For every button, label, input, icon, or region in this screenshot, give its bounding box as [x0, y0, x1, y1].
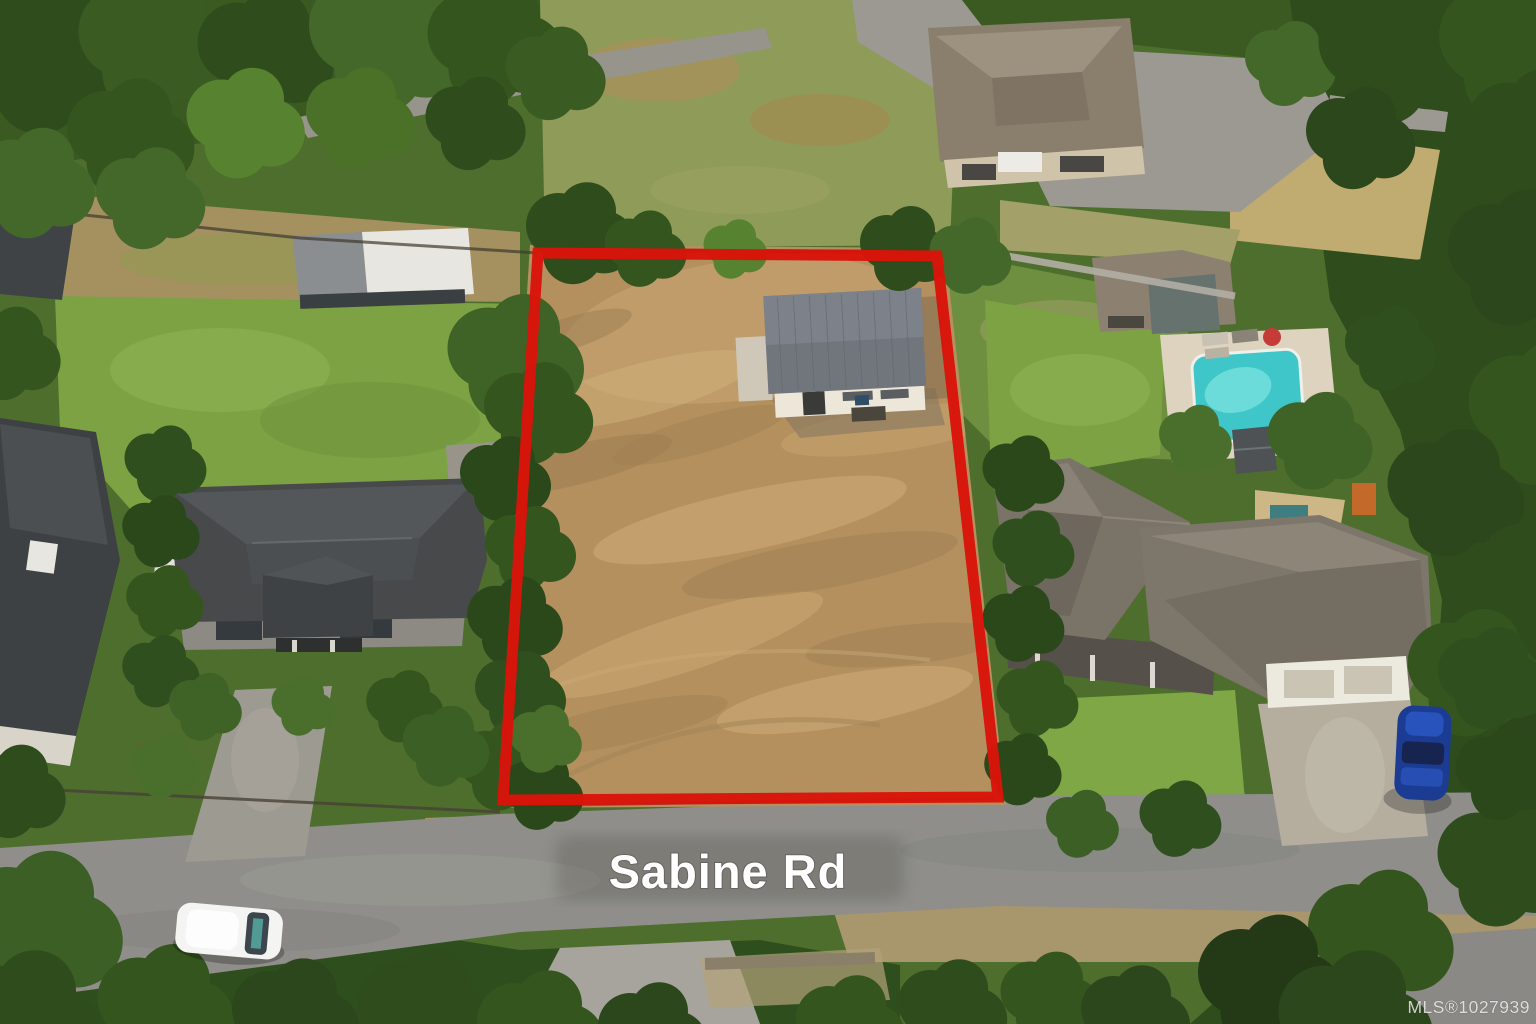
garage-door [802, 391, 825, 415]
aerial-photo: Sabine Rd MLS®1027939 [0, 0, 1536, 1024]
mls-watermark: MLS®1027939 [1407, 997, 1530, 1017]
white-trailer [998, 152, 1042, 172]
aerial-photo-canvas: Sabine Rd MLS®1027939 [0, 0, 1536, 1024]
red-umbrella [1263, 328, 1281, 346]
road-name-label: Sabine Rd [609, 845, 848, 898]
neighbor-house-top [928, 18, 1145, 188]
skylight [26, 540, 58, 574]
neighbor-house-left [152, 478, 487, 652]
